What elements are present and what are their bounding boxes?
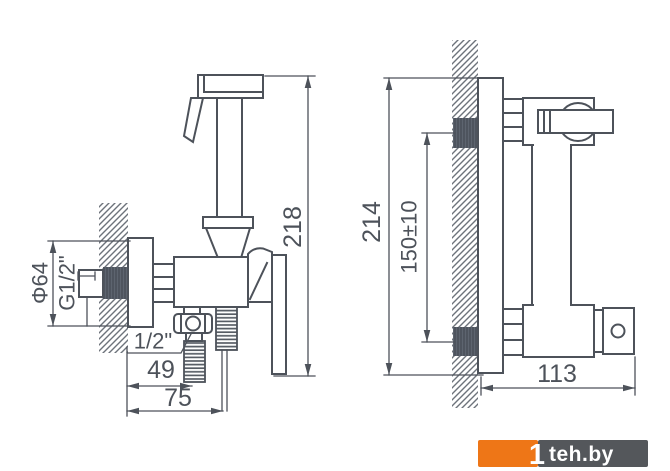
- dim-body-height-label: 214: [358, 201, 386, 243]
- body-neck-fill: [534, 143, 570, 307]
- watermark: 1 teh.by: [478, 439, 648, 471]
- nut-body: [153, 264, 174, 302]
- technical-drawing-bidet-mixer: Φ64 G1/2" 218 49 75 1/2": [0, 0, 670, 471]
- handle-arm: [272, 255, 286, 374]
- hand-sprayer: [184, 75, 263, 258]
- dim-total-height-label: 218: [279, 206, 307, 248]
- sprayer-collar: [203, 217, 253, 228]
- valve-port: [186, 317, 200, 331]
- fitting-port: [612, 325, 625, 338]
- fitting-collar: [594, 310, 603, 352]
- hose-braid-outlet: [184, 341, 205, 382]
- watermark-symbol: 1: [529, 439, 545, 471]
- sprayer-head: [198, 75, 263, 98]
- dim-escutcheon-label: Φ64: [28, 262, 53, 304]
- dim-outlet-depth-label: 75: [164, 384, 192, 412]
- outlet-fitting-side: [594, 308, 634, 354]
- mounting-nut-front: [153, 264, 174, 302]
- handle-lever-front: [248, 248, 286, 374]
- dim-wall-thread-label: G1/2": [55, 255, 80, 311]
- dim-inlet-spacing-label: 150±10: [397, 200, 422, 273]
- inlet-thread-upper: [453, 118, 478, 148]
- dim-outlet-depth: 75: [127, 384, 223, 412]
- handle-side: [538, 110, 613, 133]
- dim-depth: 113: [481, 357, 635, 395]
- sprayer-trigger: [184, 98, 203, 142]
- mixer-body-front: [174, 257, 248, 307]
- front-view: Φ64 G1/2" 218 49 75 1/2": [28, 75, 316, 416]
- hose-braid-shower: [216, 307, 237, 350]
- watermark-site-text: teh.by: [549, 443, 614, 466]
- outlet-valve-front: [174, 307, 212, 341]
- side-view: 214 150±10 113: [358, 40, 635, 408]
- nut-body: [503, 309, 523, 355]
- supply-pipe-stub: [79, 270, 103, 297]
- hose-tail-lines: [222, 350, 227, 411]
- escutcheon-plate-side: [478, 78, 503, 373]
- escutcheon-plate-front: [128, 238, 153, 327]
- sprayer-tube: [217, 97, 242, 217]
- body-bottom-block: [523, 305, 594, 357]
- wall-thread-block-front: [103, 267, 128, 299]
- sprayer-cone: [206, 228, 250, 258]
- nut-body: [503, 99, 523, 141]
- dim-inlet-spacing: 150±10: [397, 133, 456, 342]
- inlet-thread-lower: [453, 327, 478, 356]
- drawing-canvas: Φ64 G1/2" 218 49 75 1/2": [0, 0, 670, 471]
- mounting-nut-lower-side: [503, 309, 523, 355]
- dim-depth-label: 113: [537, 360, 577, 388]
- outlet-thread-label: 1/2": [134, 329, 172, 354]
- dim-outlet-offset-label: 49: [147, 356, 175, 384]
- mounting-nut-upper-side: [503, 99, 523, 141]
